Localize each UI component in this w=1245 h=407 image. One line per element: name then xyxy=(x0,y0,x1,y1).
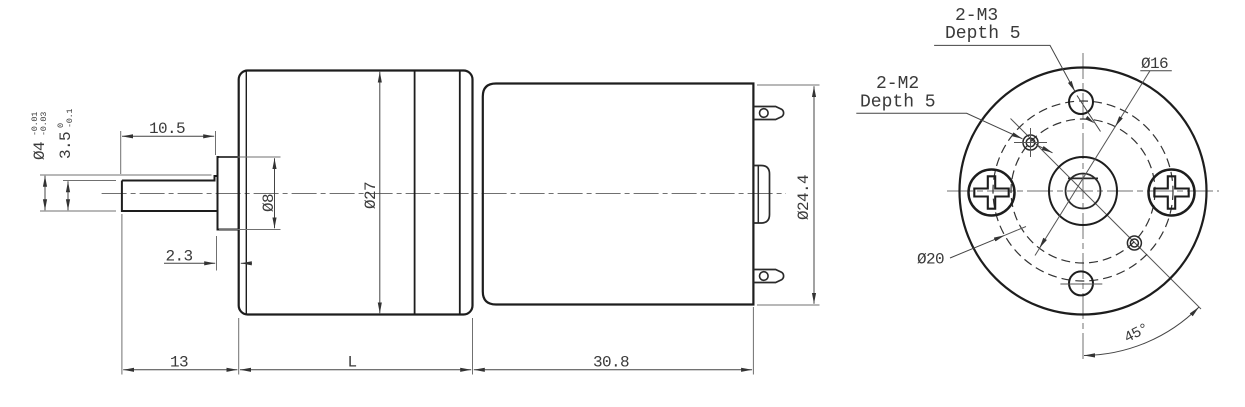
svg-text:2-M3: 2-M3 xyxy=(955,6,998,26)
svg-text:10.5: 10.5 xyxy=(149,120,185,138)
svg-text:3.5: 3.5 xyxy=(57,132,75,159)
svg-text:Ø8: Ø8 xyxy=(260,194,278,212)
svg-text:2-M2: 2-M2 xyxy=(876,74,919,94)
svg-text:13: 13 xyxy=(170,354,188,372)
svg-text:2.3: 2.3 xyxy=(165,248,192,266)
svg-text:Ø24.4: Ø24.4 xyxy=(795,175,813,220)
svg-text:Depth 5: Depth 5 xyxy=(945,24,1021,44)
svg-text:Ø4: Ø4 xyxy=(31,142,49,160)
svg-text:-0.03: -0.03 xyxy=(39,112,49,136)
svg-text:30.8: 30.8 xyxy=(593,354,629,372)
svg-text:Ø27: Ø27 xyxy=(362,182,380,209)
svg-text:Ø20: Ø20 xyxy=(917,251,944,269)
svg-text:Depth 5: Depth 5 xyxy=(860,93,936,113)
svg-text:45°: 45° xyxy=(1122,320,1152,347)
svg-text:-0.1: -0.1 xyxy=(65,109,75,128)
svg-text:L: L xyxy=(347,354,356,372)
